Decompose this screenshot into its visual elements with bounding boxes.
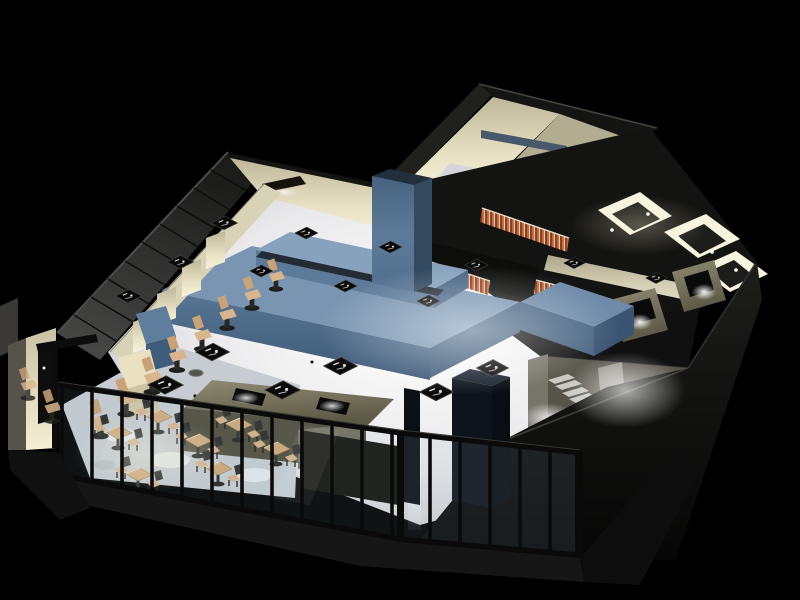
right-hotspot (565, 352, 685, 428)
recessed-light (692, 284, 716, 300)
recessed-light (319, 400, 345, 412)
facade-end-post (575, 451, 583, 558)
door-lamp (43, 367, 46, 370)
restroom-glow (570, 195, 710, 255)
facade-corner-post (397, 431, 404, 542)
floor-fixture-round (189, 370, 203, 377)
render-canvas (0, 0, 800, 600)
floorplan-render (0, 0, 800, 600)
recessed-light (233, 392, 259, 404)
vestibule-side (8, 338, 26, 450)
